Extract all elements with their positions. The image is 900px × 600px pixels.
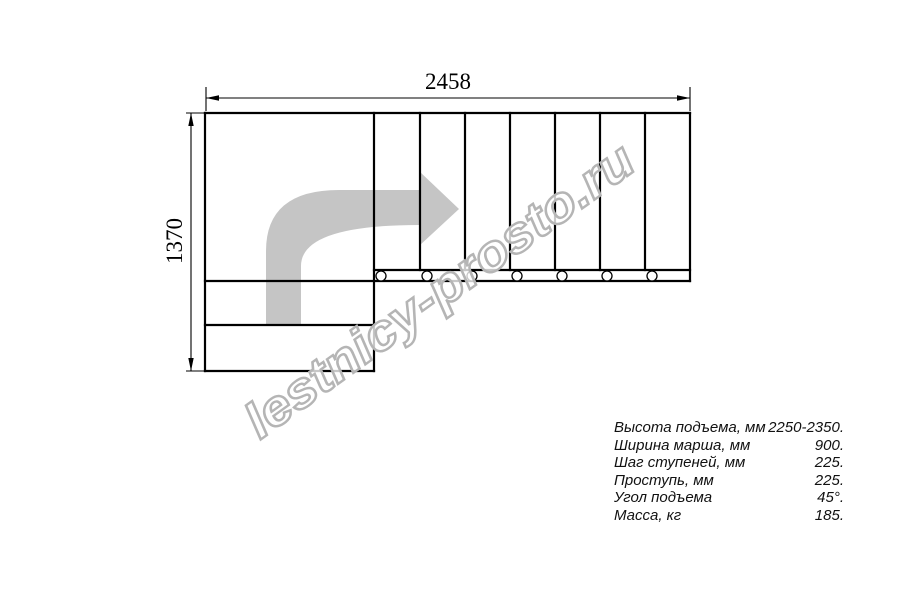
left-dimension-lines xyxy=(186,113,204,371)
spec-value: 45°. xyxy=(817,489,844,507)
spec-label: Масса, кг xyxy=(614,507,681,525)
spec-row-step-pitch: Шаг ступеней, мм 225. xyxy=(614,454,844,472)
spec-value: 225. xyxy=(815,454,844,472)
spec-value: 185. xyxy=(815,507,844,525)
spec-label: Ширина марша, мм xyxy=(614,437,750,455)
top-dimension-value: 2458 xyxy=(388,69,508,95)
spec-label: Проступь, мм xyxy=(614,472,714,490)
spec-label: Угол подъема xyxy=(614,489,712,507)
spec-row-tread: Проступь, мм 225. xyxy=(614,472,844,490)
spec-value: 2250-2350. xyxy=(768,419,844,437)
spec-value: 900. xyxy=(815,437,844,455)
spec-label: Шаг ступеней, мм xyxy=(614,454,745,472)
spec-row-flight-width: Ширина марша, мм 900. xyxy=(614,437,844,455)
spec-row-mass: Масса, кг 185. xyxy=(614,507,844,525)
spec-row-rise-height: Высота подъема, мм 2250-2350. xyxy=(614,419,844,437)
spec-table: Высота подъема, мм 2250-2350. Ширина мар… xyxy=(614,419,844,524)
spec-label: Высота подъема, мм xyxy=(614,419,766,437)
left-dimension-value: 1370 xyxy=(162,201,188,281)
spec-value: 225. xyxy=(815,472,844,490)
staircase-plan-page: lestnicy-prosto.ru 2458 1370 Высота подъ… xyxy=(0,0,900,600)
spec-row-rise-angle: Угол подъема 45°. xyxy=(614,489,844,507)
